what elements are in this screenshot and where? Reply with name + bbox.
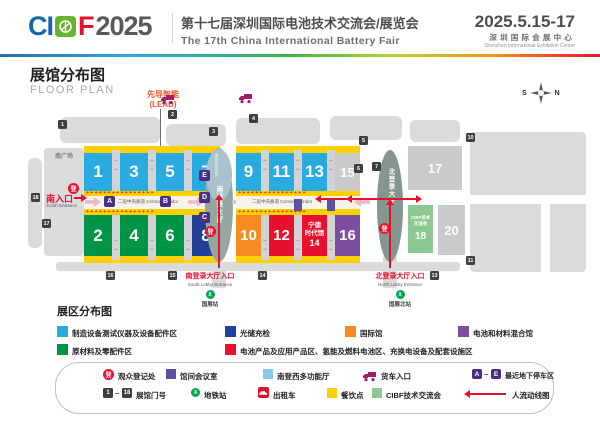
hall-1: 1 xyxy=(84,153,112,191)
flow-arrowhead-up xyxy=(215,194,223,200)
metro-icon: X xyxy=(206,290,215,299)
gate-marker: 13 xyxy=(430,271,439,280)
truck-icon xyxy=(160,92,175,110)
plan-title-en: FLOOR PLAN xyxy=(30,84,115,96)
parking-a: A xyxy=(104,196,115,207)
east-building-channel xyxy=(541,204,550,272)
zone-swatch-blue xyxy=(57,326,68,337)
gate-marker: 16 xyxy=(106,271,115,280)
battery-aperture-icon xyxy=(55,16,76,37)
zone-label: 电池和材料混合馆 xyxy=(473,328,533,339)
gate-marker: 3 xyxy=(209,127,218,136)
gate-marker: 4 xyxy=(249,114,258,123)
hall-3: 3 xyxy=(120,153,148,191)
metro-icon: X xyxy=(191,388,200,397)
parking-d: D xyxy=(199,192,210,203)
legend-parking-e: E xyxy=(491,369,501,379)
hall-18-number: 18 xyxy=(415,230,426,243)
hall-12: 12 xyxy=(269,215,294,256)
event-dates: 2025.5.15-17 xyxy=(475,12,575,32)
compass-star xyxy=(530,82,552,104)
building-shape xyxy=(410,120,460,142)
south-entrance-arrowhead xyxy=(81,194,87,202)
truck-icon xyxy=(362,369,377,387)
gate-marker: 10 xyxy=(466,133,475,142)
legend-gate-label: 展馆门号 xyxy=(136,390,166,401)
zone-swatch-purple xyxy=(458,326,469,337)
south-entrance-en: South Entrance xyxy=(46,203,77,208)
walkway xyxy=(56,262,460,271)
legend-food: 餐饮点 xyxy=(341,390,364,401)
gate-marker: 5 xyxy=(359,136,368,145)
zone-swatch-darkblue xyxy=(225,326,236,337)
legend-parking-a: A xyxy=(472,369,482,379)
compass-n: N xyxy=(555,90,560,97)
parking-c: C xyxy=(199,212,210,223)
multi-hall-swatch xyxy=(263,369,273,379)
gate-marker: 18 xyxy=(31,193,40,202)
compass-icon: S N xyxy=(522,82,560,104)
flow-arrowhead-left xyxy=(315,195,321,203)
hall-6: 6 xyxy=(156,215,184,256)
hall-4: 4 xyxy=(120,215,148,256)
logo-text-f: F xyxy=(78,11,94,42)
legend-multi-hall: 南登西多功能厅 xyxy=(277,371,330,382)
east-building-channel xyxy=(470,195,586,204)
flow-legend-line xyxy=(470,393,506,395)
flow-arrowhead-left xyxy=(346,195,352,203)
food-swatch xyxy=(327,388,337,398)
legend-visitor-reg: 观众登记处 xyxy=(118,371,156,382)
legend-flow: 人流动线图 xyxy=(512,390,550,401)
zone-label: 电池产品及应用产品区、氢能及燃料电池区、充换电设备及配套设施区 xyxy=(240,346,473,357)
building-shape xyxy=(28,158,42,248)
legend-meeting-room: 馆间会议室 xyxy=(180,371,218,382)
legend-gate-1: 1 xyxy=(103,388,113,398)
metro-station-south: 国展站 xyxy=(202,300,219,308)
south-lobby-entrance-en: South Lobby Entrance xyxy=(188,282,233,287)
range-dash: – xyxy=(115,389,119,398)
hall-10: 10 xyxy=(236,215,261,256)
registration-icon: 登 xyxy=(205,226,216,237)
hall-20: 20 xyxy=(438,205,465,255)
zone-swatch-green xyxy=(57,344,68,355)
flow-line-south xyxy=(218,200,220,268)
zone-label: 原材料及零配件区 xyxy=(72,346,132,357)
meeting-room-block xyxy=(294,199,302,211)
gate-marker: 1 xyxy=(58,120,67,129)
header-gradient-bar xyxy=(0,54,600,57)
parking-b: B xyxy=(160,196,171,207)
hall-5: 5 xyxy=(156,153,184,191)
gate-marker: 14 xyxy=(258,271,267,280)
legend-truck-entrance: 货车入口 xyxy=(381,371,411,382)
corridor-label-east: 二层中央廊道 Central Corridor xyxy=(252,199,312,205)
logo: CI F 2025 xyxy=(28,11,152,42)
building-shape xyxy=(60,117,160,143)
fair-title: 第十七届深圳国际电池技术交流会/展览会 The 17th China Inter… xyxy=(181,13,419,47)
gate-marker: 2 xyxy=(168,110,177,119)
meeting-room-block xyxy=(327,199,335,211)
cibf-floor-plan-page: CI F 2025 第十七届深圳国际电池技术交流会/展览会 The 17th C… xyxy=(0,0,600,424)
gate-marker: 7 xyxy=(372,162,381,171)
south-lobby-multi-hall-label: 南登西多功能厅 xyxy=(215,153,220,178)
north-lobby-entrance-en: North Lobby Entrance xyxy=(378,282,422,287)
hall-14-catl: 宁德 时代馆 14 xyxy=(302,215,327,256)
plan-title-cn: 展馆分布图 xyxy=(30,64,105,85)
hall-16: 16 xyxy=(335,215,360,256)
meeting-room-swatch xyxy=(166,369,176,379)
fair-title-en: The 17th China International Battery Fai… xyxy=(181,35,419,47)
corridor-crossing-marks: + + + + + + + + + + + + + + + + xyxy=(238,191,358,196)
gate-marker: 15 xyxy=(168,271,177,280)
parking-e: E xyxy=(199,170,210,181)
taxi-icon xyxy=(258,387,269,398)
north-lobby-entrance: 北登录大厅入口 North Lobby Entrance X 国展北站 xyxy=(360,271,440,308)
zone-label: 制造设备测试仪器及设备配件区 xyxy=(72,328,177,339)
legend-cibf: CIBF技术交流会 xyxy=(386,390,441,401)
flow-line-corridor xyxy=(320,198,418,200)
hall-18-label: CIBF技术 交流会 xyxy=(411,215,431,227)
flow-arrowhead-right xyxy=(416,195,422,203)
gate-marker: 6 xyxy=(354,164,363,173)
hall-18: CIBF技术 交流会 18 xyxy=(408,205,433,253)
legend-gate-18: 18 xyxy=(122,388,132,398)
range-dash: – xyxy=(484,370,488,379)
zone-legend-title: 展区分布图 xyxy=(57,303,112,319)
south-lobby-entrance-cn: 南登录大厅入口 xyxy=(186,271,235,281)
hall-17: 17 xyxy=(408,146,462,190)
hall-9: 9 xyxy=(236,153,261,191)
north-lobby-entrance-cn: 北登录大厅入口 xyxy=(376,271,425,281)
truck-icon xyxy=(238,91,253,109)
hall-2: 2 xyxy=(84,215,112,256)
cibf-swatch xyxy=(372,388,382,398)
zone-label: 光储充检 xyxy=(240,328,270,339)
flow-legend-arrowhead xyxy=(464,390,470,398)
metro-station-north: 国展北站 xyxy=(389,300,411,308)
venue-cn: 深圳国际会展中心 xyxy=(475,32,575,43)
hall-13: 13 xyxy=(302,153,327,191)
metro-icon: X xyxy=(396,290,405,299)
logo-text-year: 2025 xyxy=(96,11,152,42)
logo-text-ci: CI xyxy=(28,11,53,42)
south-plaza-label: 南广场 xyxy=(46,151,82,160)
event-dates-block: 2025.5.15-17 深圳国际会展中心 Shenzhen Internati… xyxy=(475,12,575,49)
zone-swatch-red xyxy=(225,344,236,355)
zone-label: 国际馆 xyxy=(360,328,383,339)
legend-parking-label: 最近地下停车区 xyxy=(505,371,554,381)
venue-en: Shenzhen International Exhibition Center xyxy=(475,43,575,49)
registration-icon: 登 xyxy=(103,369,114,380)
gate-marker: 11 xyxy=(466,256,475,265)
fair-title-cn: 第十七届深圳国际电池技术交流会/展览会 xyxy=(181,13,419,32)
compass-s: S xyxy=(522,90,527,97)
south-lobby-entrance: 南登录大厅入口 South Lobby Entrance X 国展站 xyxy=(170,271,250,308)
zone-swatch-orange xyxy=(345,326,356,337)
legend-taxi: 出租车 xyxy=(273,390,296,401)
hall-11: 11 xyxy=(269,153,294,191)
header-divider xyxy=(172,13,173,43)
flow-line-north xyxy=(389,205,391,268)
gate-marker: 17 xyxy=(42,219,51,228)
legend-metro: 地铁站 xyxy=(204,390,227,401)
